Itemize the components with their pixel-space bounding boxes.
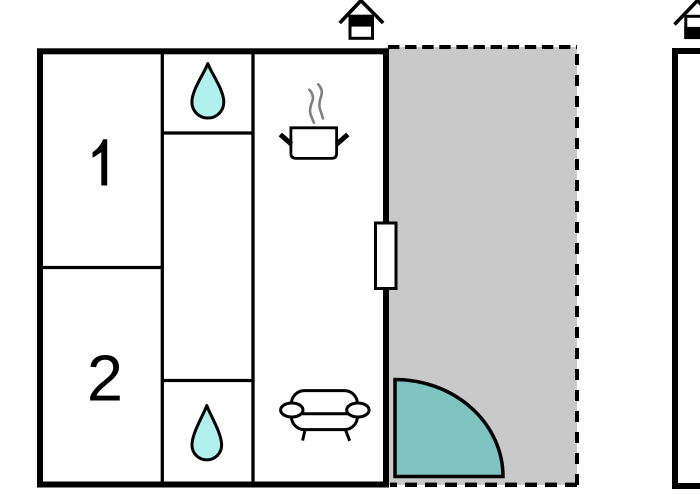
svg-text:2: 2 <box>87 342 123 415</box>
